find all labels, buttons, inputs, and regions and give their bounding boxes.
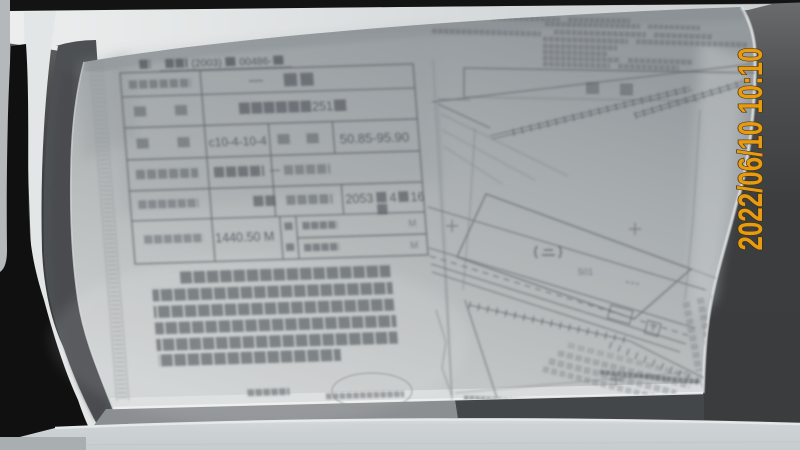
svg-text:251: 251 — [312, 100, 334, 115]
svg-text:(2003): (2003) — [191, 57, 222, 70]
svg-text:M: M — [410, 240, 419, 251]
svg-text:2053: 2053 — [345, 191, 374, 206]
svg-text:4: 4 — [389, 191, 397, 205]
svg-text:50.85-95.90: 50.85-95.90 — [339, 129, 410, 146]
svg-text:2022/06/10 10:10: 2022/06/10 10:10 — [732, 48, 770, 251]
svg-text:c10-4-10-4: c10-4-10-4 — [208, 134, 267, 150]
svg-text:1440.50 M: 1440.50 M — [215, 230, 275, 246]
svg-text:M: M — [408, 218, 417, 229]
svg-text:501: 501 — [578, 267, 593, 277]
svg-text:16: 16 — [410, 190, 425, 204]
svg-text:00486-: 00486- — [239, 55, 273, 68]
